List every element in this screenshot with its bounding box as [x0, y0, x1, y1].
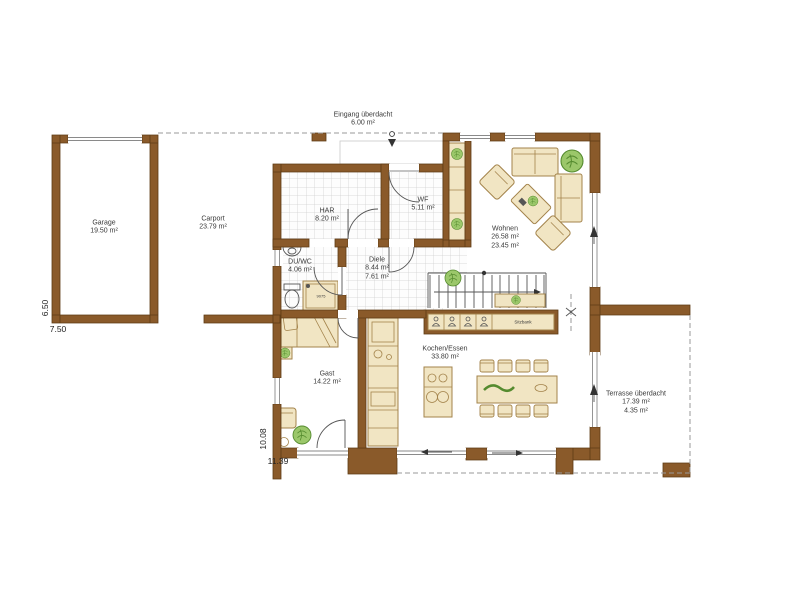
shower-text: 9075: [317, 295, 326, 300]
terrasse-label: Terrasse überdacht 17.39 m² 4.35 m²: [606, 390, 666, 415]
room-area: 19.50 m²: [90, 228, 118, 236]
garage-label: Garage 19.50 m²: [90, 220, 118, 237]
room-name: WF: [411, 197, 434, 205]
room-area2: 4.35 m²: [606, 407, 666, 415]
shower-label: 9075: [317, 295, 326, 300]
har-label: HAR 8.20 m²: [315, 208, 339, 225]
bench-body: [428, 314, 554, 330]
dining-chair: [480, 405, 494, 417]
shower-drain: [306, 284, 310, 288]
room-name: Garage: [90, 220, 118, 228]
room-name: HAR: [315, 208, 339, 216]
wohnen-label: Wohnen 26.58 m² 23.45 m²: [491, 225, 519, 250]
duwc-label: DU/WC 4.06 m²: [288, 259, 312, 276]
plant-icon: [528, 196, 538, 206]
room-name: Terrasse überdacht: [606, 390, 666, 398]
dimension-garage-width: 7.50: [50, 324, 67, 334]
room-area: 23.79 m²: [199, 224, 227, 232]
room-name: Kochen/Essen: [422, 346, 467, 354]
room-area: 17.39 m²: [606, 399, 666, 407]
dining-chair: [498, 405, 512, 417]
room-area: 33.80 m²: [422, 354, 467, 362]
dining-table: [477, 376, 557, 403]
room-area: 8.20 m²: [315, 216, 339, 224]
dimension-house-height: 10.08: [258, 428, 268, 449]
plant-icon: [445, 270, 461, 286]
armchair-1: [479, 164, 516, 201]
carport-label: Carport 23.79 m²: [199, 216, 227, 233]
room-area: 8.44 m²: [365, 265, 389, 273]
bench-text: Sitzbank: [514, 319, 531, 324]
room-name: DU/WC: [288, 259, 312, 267]
room-area2: 7.61 m²: [365, 273, 389, 281]
plant-icon: [512, 296, 521, 305]
room-area: 5.11 m²: [411, 205, 434, 213]
room-area: 4.06 m²: [288, 267, 312, 275]
kitchen-island: [424, 367, 452, 417]
diele-floor-east: [443, 247, 467, 273]
wf-label: WF 5.11 m²: [411, 197, 434, 214]
bench-label: Sitzbank: [514, 319, 531, 324]
dining-chair: [534, 360, 548, 372]
room-area: 26.58 m²: [491, 234, 519, 242]
har-floor: [281, 172, 381, 239]
plant-icon: [452, 219, 463, 230]
floor-plan-drawing: [0, 0, 800, 600]
dining-chair: [516, 360, 530, 372]
dining-chair: [480, 360, 494, 372]
dining-chair: [498, 360, 512, 372]
stair-rail-post: [482, 271, 486, 275]
under-stair-bench: [424, 310, 558, 334]
gast-label: Gast 14.22 m²: [313, 371, 341, 388]
dimension-garage-height: 6.50: [40, 300, 50, 317]
floor-plan: Eingang überdacht 6.00 m² Garage 19.50 m…: [0, 0, 800, 600]
dining-chair: [516, 405, 530, 417]
plant-icon: [293, 426, 311, 444]
room-name: Wohnen: [491, 225, 519, 233]
room-name: Eingang überdacht: [334, 112, 393, 120]
plant-icon: [561, 150, 583, 172]
dining-chair: [534, 405, 548, 417]
diele-label: Diele 8.44 m² 7.61 m²: [365, 256, 389, 281]
room-area: 14.22 m²: [313, 379, 341, 387]
kochen-label: Kochen/Essen 33.80 m²: [422, 346, 467, 363]
kitchen-counter: [368, 318, 398, 446]
room-name: Carport: [199, 216, 227, 224]
room-name: Gast: [313, 371, 341, 379]
room-name: Diele: [365, 256, 389, 264]
plant-icon: [280, 348, 290, 358]
kitchen-furniture: [368, 318, 557, 446]
entry-marker-circle: [390, 132, 395, 137]
room-area: 6.00 m²: [334, 120, 393, 128]
room-area2: 23.45 m²: [491, 242, 519, 250]
plant-icon: [452, 149, 463, 160]
dimension-house-width: 11.39: [268, 456, 289, 466]
eingang-label: Eingang überdacht 6.00 m²: [334, 112, 393, 129]
